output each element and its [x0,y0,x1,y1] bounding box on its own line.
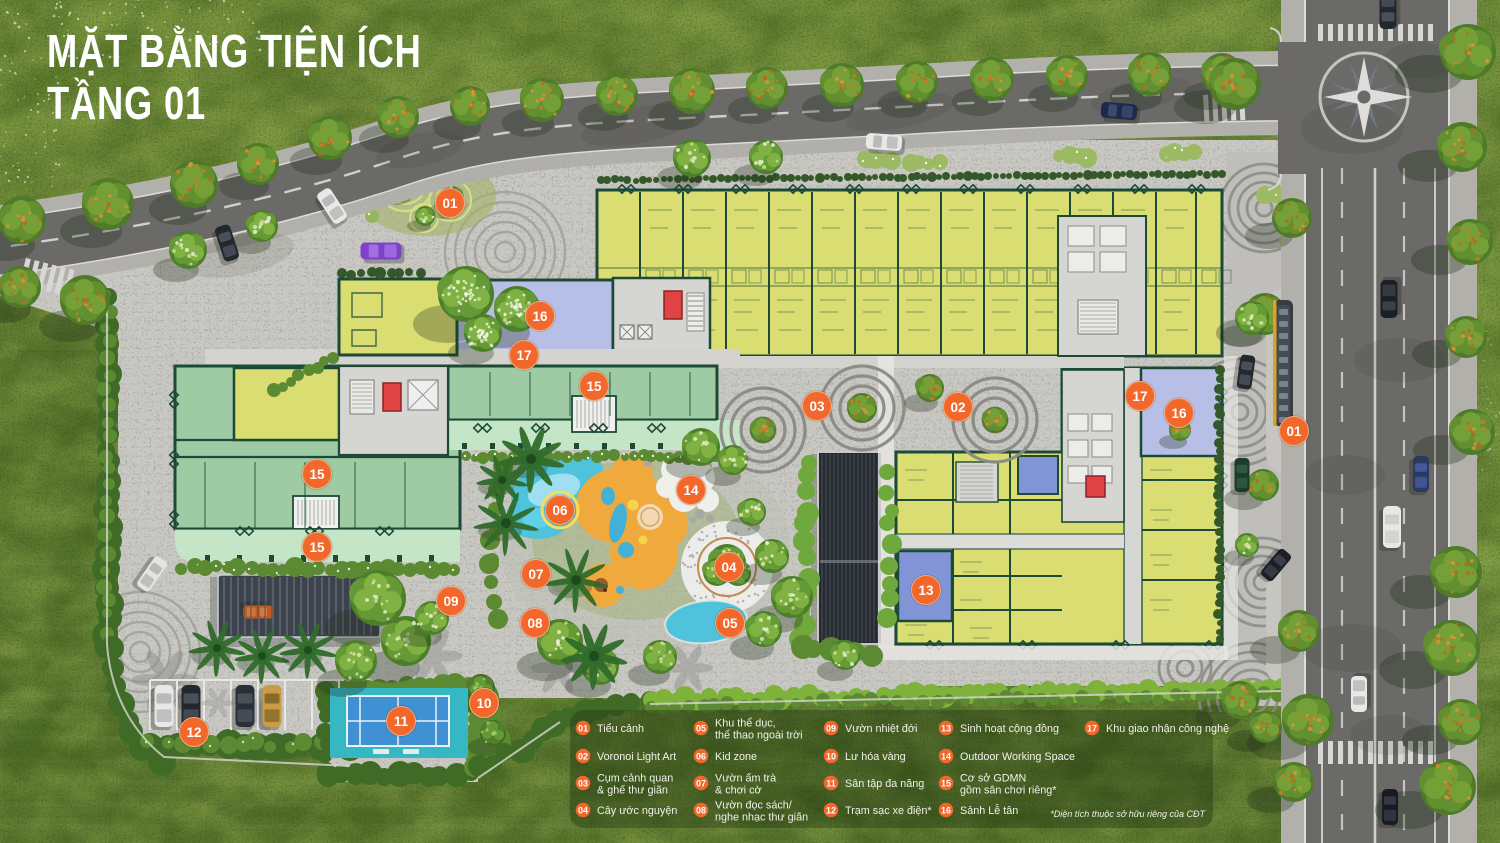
svg-text:Lư hóa vàng: Lư hóa vàng [845,751,906,763]
svg-text:13: 13 [941,723,951,733]
svg-text:04: 04 [578,805,588,815]
svg-text:07: 07 [528,567,543,582]
svg-text:Kid zone: Kid zone [715,751,757,763]
svg-text:TẦNG 01: TẦNG 01 [47,77,206,129]
svg-text:13: 13 [918,583,934,598]
svg-text:01: 01 [578,723,588,733]
svg-text:10: 10 [826,751,836,761]
svg-text:02: 02 [578,751,588,761]
svg-text:Cụm cảnh quan: Cụm cảnh quan [597,773,673,785]
svg-text:03: 03 [578,778,588,788]
svg-text:Vườn nhiệt đới: Vườn nhiệt đới [845,723,917,735]
svg-text:17: 17 [1087,723,1097,733]
svg-text:17: 17 [516,348,531,363]
svg-text:12: 12 [186,725,201,740]
svg-text:05: 05 [722,616,738,631]
svg-text:Sân tập đa năng: Sân tập đa năng [845,778,924,790]
svg-text:16: 16 [532,309,548,324]
svg-text:05: 05 [696,723,706,733]
svg-text:15: 15 [309,467,325,482]
svg-text:08: 08 [527,616,543,631]
svg-text:Tiểu cảnh: Tiểu cảnh [597,723,644,735]
svg-text:17: 17 [1132,389,1147,404]
svg-text:09: 09 [443,594,458,609]
svg-text:15: 15 [941,778,951,788]
svg-text:Cây ước nguyện: Cây ước nguyện [597,805,677,817]
svg-text:gồm sân chơi riêng*: gồm sân chơi riêng* [960,785,1057,797]
svg-text:& chơi cờ: & chơi cờ [715,785,762,797]
svg-text:02: 02 [950,400,965,415]
svg-text:Voronoi Light Art: Voronoi Light Art [597,751,676,763]
svg-text:15: 15 [586,379,602,394]
svg-text:MẶT BẰNG TIỆN ÍCH: MẶT BẰNG TIỆN ÍCH [47,25,422,77]
svg-text:16: 16 [941,805,951,815]
svg-text:Cơ sở GDMN: Cơ sở GDMN [960,773,1026,785]
svg-text:& ghế thư giãn: & ghế thư giãn [597,785,668,797]
svg-text:Khu giao nhận công nghệ: Khu giao nhận công nghệ [1106,723,1229,735]
svg-text:14: 14 [941,751,951,761]
svg-text:Vườn ấm trà: Vườn ấm trà [715,773,776,785]
svg-text:11: 11 [394,714,409,729]
svg-text:14: 14 [683,483,699,498]
svg-text:thể thao ngoài trời: thể thao ngoài trời [715,730,803,742]
svg-text:01: 01 [442,196,458,211]
svg-text:08: 08 [696,805,706,815]
svg-text:06: 06 [696,751,706,761]
svg-text:Sảnh Lễ tân: Sảnh Lễ tân [960,804,1018,817]
svg-text:07: 07 [696,778,706,788]
svg-text:nghe nhạc thư giãn: nghe nhạc thư giãn [715,812,808,824]
svg-text:Vườn đọc sách/: Vườn đọc sách/ [715,800,792,812]
svg-text:01: 01 [1286,424,1302,439]
svg-text:Khu thể dục,: Khu thể dục, [715,718,776,730]
svg-text:*Diện tích thuộc sở hữu riêng: *Diện tích thuộc sở hữu riêng của CĐT [1050,809,1206,819]
svg-text:15: 15 [309,540,325,555]
svg-text:Sinh hoạt cộng đồng: Sinh hoạt cộng đồng [960,723,1059,735]
svg-text:06: 06 [552,503,568,518]
svg-text:10: 10 [476,696,491,711]
svg-text:Outdoor Working Space: Outdoor Working Space [960,751,1075,763]
svg-text:04: 04 [721,560,737,575]
svg-text:12: 12 [826,805,836,815]
svg-text:09: 09 [826,723,836,733]
svg-text:Trạm sạc xe điện*: Trạm sạc xe điện* [845,805,932,817]
svg-text:03: 03 [809,399,825,414]
svg-text:16: 16 [1171,406,1187,421]
svg-text:11: 11 [826,778,836,788]
